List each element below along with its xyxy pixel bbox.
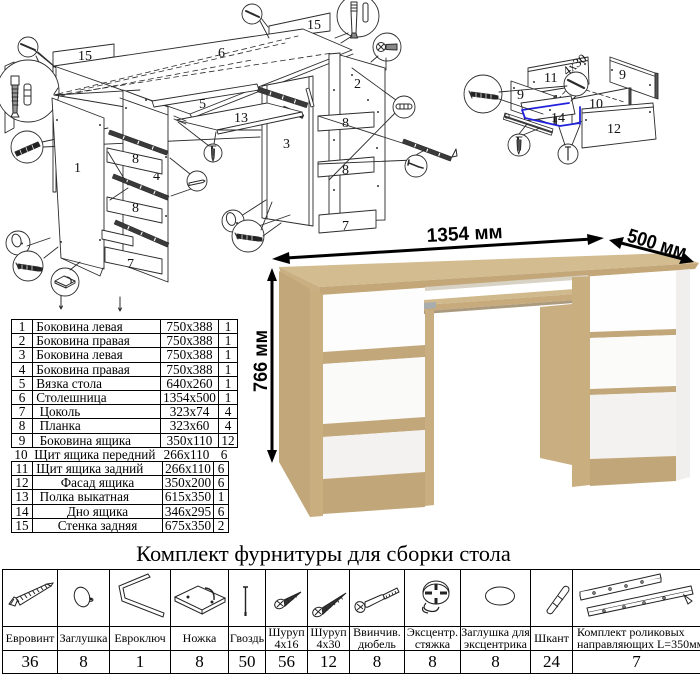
- svg-text:8: 8: [342, 116, 349, 131]
- svg-text:11: 11: [544, 71, 557, 86]
- svg-text:6: 6: [218, 46, 225, 61]
- svg-text:7: 7: [127, 257, 134, 272]
- svg-text:9: 9: [619, 68, 626, 83]
- svg-text:3: 3: [283, 137, 290, 152]
- svg-text:766 мм: 766 мм: [250, 330, 272, 392]
- svg-text:2: 2: [354, 77, 361, 92]
- svg-text:13: 13: [234, 111, 248, 126]
- svg-text:1354 мм: 1354 мм: [426, 221, 503, 247]
- svg-text:7: 7: [342, 219, 349, 234]
- svg-text:15: 15: [307, 18, 321, 33]
- svg-text:1: 1: [74, 161, 81, 176]
- svg-text:8: 8: [132, 201, 139, 216]
- svg-text:12: 12: [607, 122, 621, 137]
- svg-text:8: 8: [132, 152, 139, 167]
- svg-text:5: 5: [199, 97, 206, 112]
